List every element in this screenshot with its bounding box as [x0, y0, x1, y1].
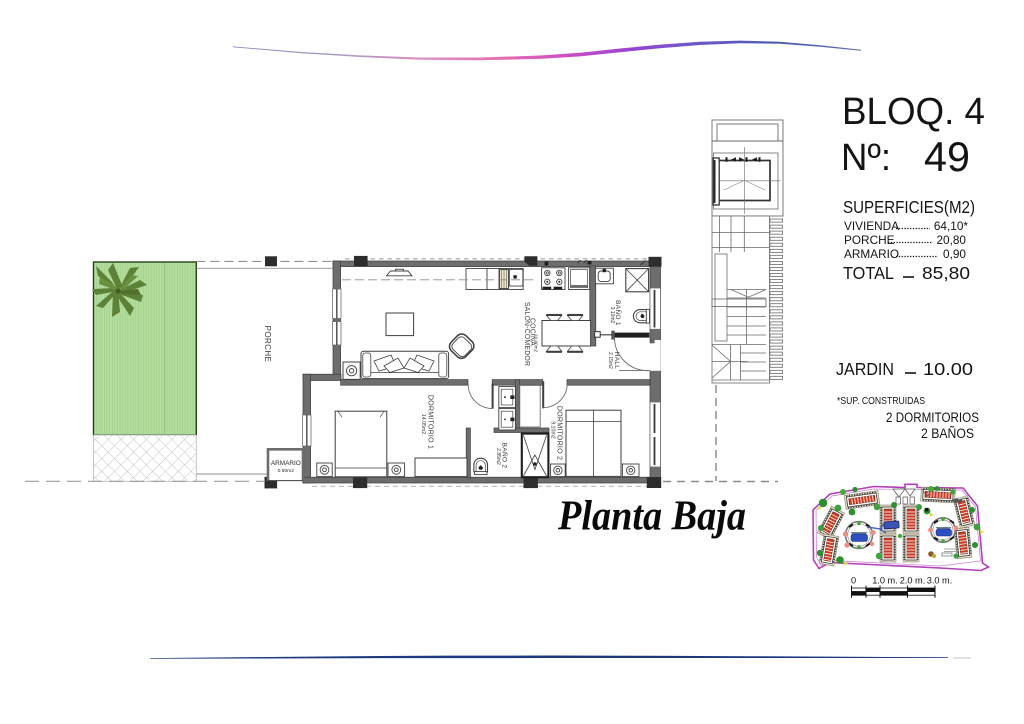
svg-text:2.85m2: 2.85m2	[495, 448, 501, 465]
svg-text:0.60m2: 0.60m2	[278, 468, 295, 474]
svg-text:64,10*: 64,10*	[934, 219, 969, 233]
svg-text:PORCHE: PORCHE	[844, 233, 895, 247]
svg-text:Planta Baja: Planta Baja	[557, 494, 746, 540]
svg-text:Nº:: Nº:	[841, 137, 891, 179]
svg-text:3.10m2: 3.10m2	[609, 307, 615, 324]
svg-text:2.0 m.: 2.0 m.	[900, 576, 926, 586]
svg-text:PORCHE: PORCHE	[263, 326, 272, 363]
svg-text:DORMITORIO 2: DORMITORIO 2	[556, 406, 564, 460]
svg-text:DORMITORIO 1: DORMITORIO 1	[427, 395, 435, 449]
svg-text:0: 0	[851, 576, 856, 586]
svg-text:SUPERFICIES(M2): SUPERFICIES(M2)	[843, 197, 975, 217]
svg-text:TOTAL: TOTAL	[843, 263, 894, 283]
svg-text:JARDIN: JARDIN	[836, 359, 894, 379]
svg-text:0,90: 0,90	[943, 247, 966, 261]
svg-text:BLOQ. 4: BLOQ. 4	[842, 91, 985, 133]
svg-text:23.90m2: 23.90m2	[534, 334, 539, 353]
svg-text:3.0 m.: 3.0 m.	[927, 576, 953, 586]
svg-text:ARMARIO: ARMARIO	[844, 247, 899, 261]
svg-text:1.0 m.: 1.0 m.	[872, 576, 898, 586]
svg-text:14.05m2: 14.05m2	[420, 414, 426, 434]
svg-text:9.10m2: 9.10m2	[550, 421, 556, 438]
svg-text:HALL: HALL	[613, 352, 620, 370]
svg-text:VIVIENDA: VIVIENDA	[844, 219, 899, 233]
svg-text:2 BAÑOS: 2 BAÑOS	[921, 426, 974, 441]
svg-text:20,80: 20,80	[936, 233, 966, 247]
svg-text:85,80: 85,80	[922, 263, 970, 283]
svg-text:2.15m2: 2.15m2	[607, 352, 613, 369]
svg-text:49: 49	[924, 133, 970, 180]
svg-text:10.00: 10.00	[923, 359, 973, 379]
svg-text:2 DORMITORIOS: 2 DORMITORIOS	[886, 410, 979, 425]
svg-text:ARMARIO: ARMARIO	[271, 460, 301, 467]
svg-text:*SUP. CONSTRUIDAS: *SUP. CONSTRUIDAS	[837, 396, 925, 407]
